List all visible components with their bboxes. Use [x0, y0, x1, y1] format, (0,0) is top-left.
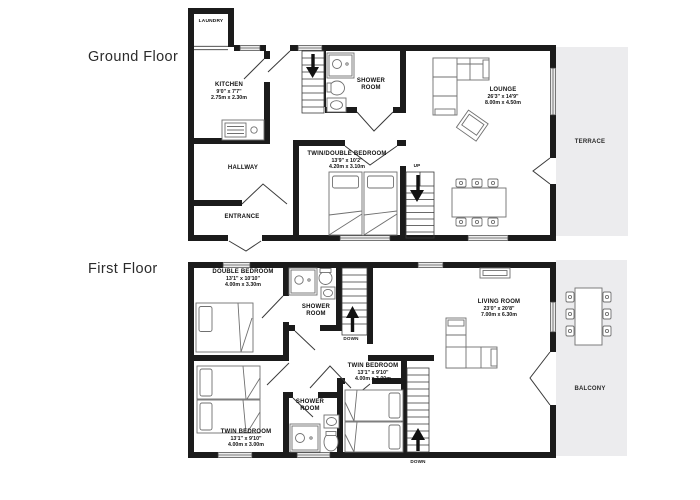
shower-cubicle: [289, 268, 317, 295]
floorplan-canvas: Ground Floor First Floor LAUNDRY KITCHEN…: [0, 0, 700, 500]
room-label-twin-double-bedroom: TWIN/DOUBLE BEDROOM 13'9" x 10'2" 4.20m …: [307, 151, 386, 171]
stairs-up-arrow-icon: [411, 428, 425, 451]
kitchen-counter: [222, 120, 264, 140]
toilet: [327, 81, 345, 95]
floorplan-drawing: [0, 0, 700, 500]
room-label-balcony: BALCONY: [574, 386, 605, 393]
corner-sofa: [433, 58, 489, 115]
corner-sofa: [446, 318, 497, 368]
stairs-first-down-top: [342, 268, 367, 335]
stairs-down-label-top: DOWN: [343, 336, 358, 341]
sink: [321, 287, 335, 299]
room-label-living-room: LIVING ROOM 23'0" x 20'8" 7.00m x 6.30m: [478, 299, 521, 319]
room-label-laundry: LAUNDRY: [199, 19, 224, 25]
room-label-twin-bedroom-left: TWIN BEDROOM 13'1" x 9'10" 4.00m x 3.00m: [221, 429, 272, 449]
shower-cubicle: [327, 53, 354, 78]
stairs-ground-up: [406, 172, 434, 238]
stairs-up-arrow-icon: [410, 175, 424, 202]
ground-floor-title: Ground Floor: [88, 49, 178, 65]
dining-table: [452, 179, 506, 226]
twin-bed: [345, 422, 403, 452]
room-label-shower-room-ground: SHOWER ROOM: [355, 78, 387, 92]
twin-bed: [364, 172, 397, 235]
room-label-double-bedroom: DOUBLE BEDROOM 13'1" x 10'10" 4.00m x 3.…: [212, 269, 273, 289]
room-label-kitchen: KITCHEN 9'0" x 7'7" 2.75m x 2.30m: [211, 82, 247, 102]
twin-bed: [197, 366, 260, 399]
stairs-down-label-bottom: DOWN: [410, 459, 425, 464]
shower-cubicle: [290, 424, 320, 452]
double-bed: [196, 303, 253, 352]
room-label-shower-room-first-bottom: SHOWER ROOM: [294, 399, 326, 413]
twin-bed: [329, 172, 362, 235]
room-label-shower-room-first-top: SHOWER ROOM: [300, 304, 332, 318]
toilet: [319, 269, 332, 285]
sink: [327, 98, 346, 112]
room-label-lounge: LOUNGE 26'3" x 14'9" 8.00m x 4.50m: [485, 87, 521, 107]
toilet: [324, 432, 338, 452]
twin-bed: [345, 390, 403, 421]
sink: [324, 415, 339, 428]
room-label-entrance: ENTRANCE: [225, 214, 260, 221]
stairs-up-label: UP: [414, 163, 421, 168]
room-label-twin-bedroom-right: TWIN BEDROOM 13'1" x 9'10" 4.00m x 3.00m: [348, 363, 399, 383]
room-label-terrace: TERRACE: [575, 139, 605, 146]
room-label-hallway: HALLWAY: [228, 165, 258, 172]
first-floor-title: First Floor: [88, 261, 158, 277]
tv-unit: [480, 268, 510, 278]
armchair: [456, 110, 488, 141]
stairs-first-down-bottom: [407, 368, 429, 452]
stairs-ground-upper: [302, 51, 324, 113]
